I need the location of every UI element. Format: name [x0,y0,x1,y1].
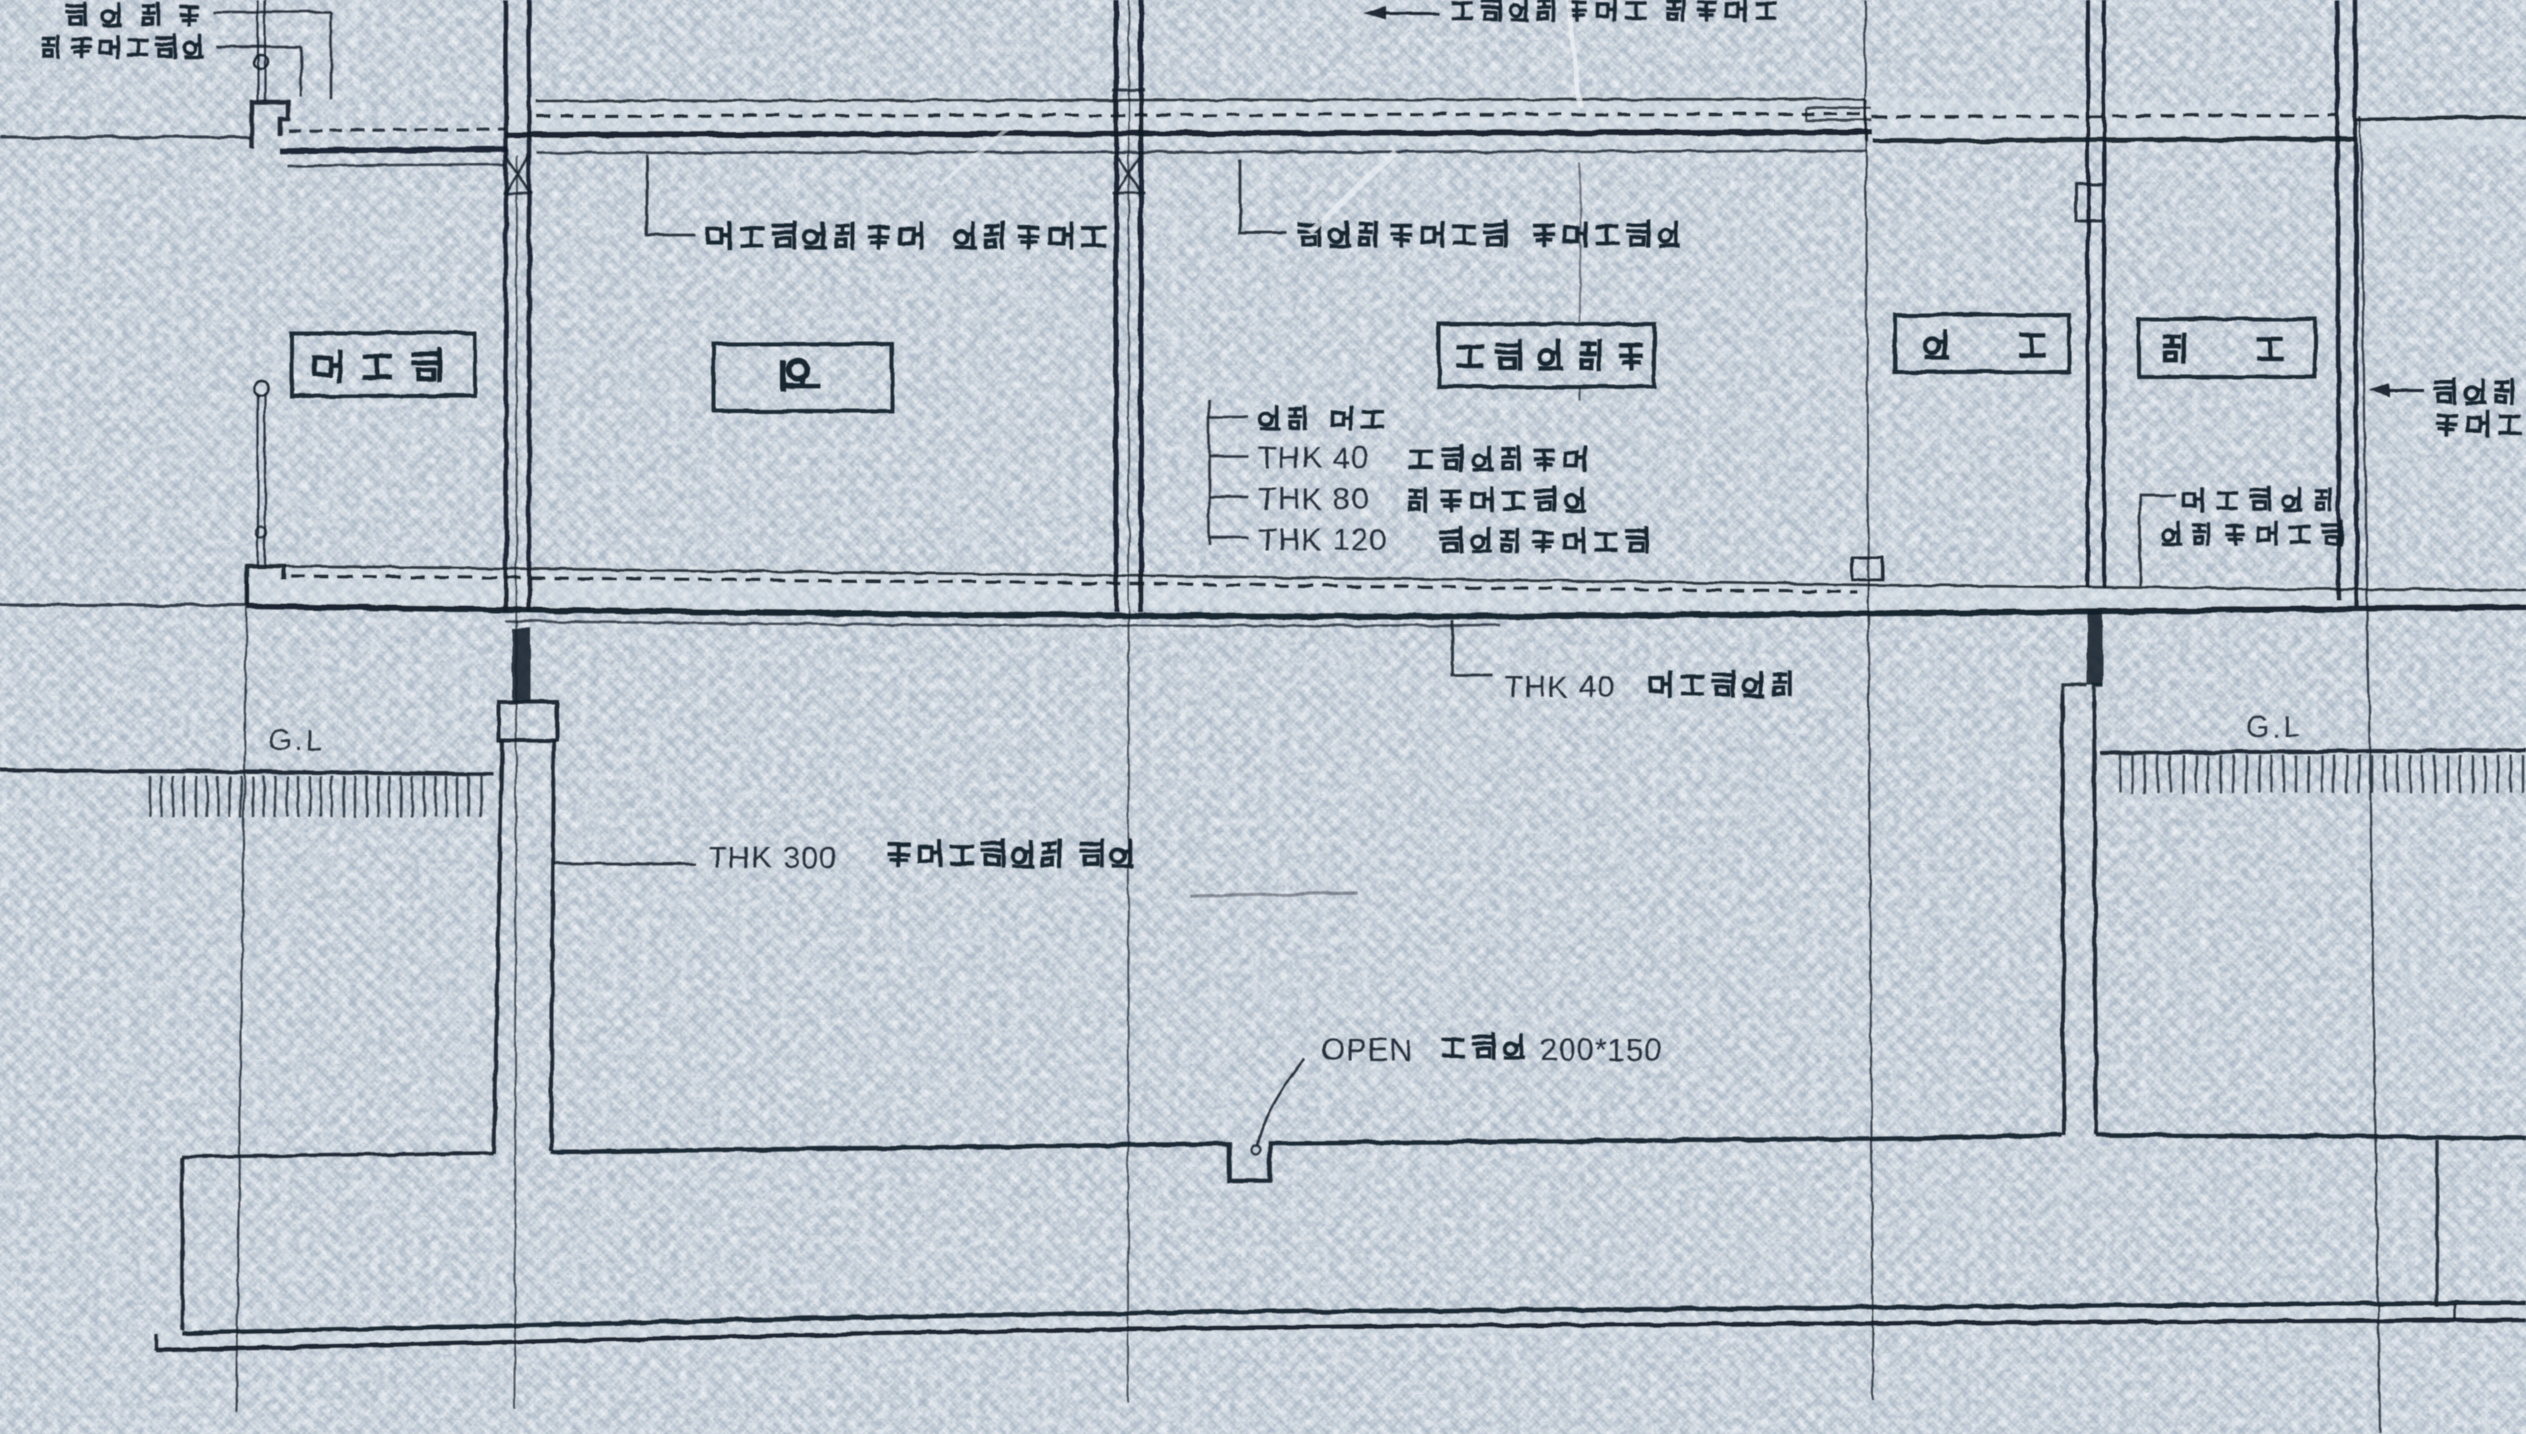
svg-text:G.L: G.L [2246,711,2303,744]
svg-text:200*150: 200*150 [1540,1032,1663,1067]
svg-text:THK 80: THK 80 [1258,481,1369,516]
svg-text:THK 120: THK 120 [1258,522,1387,557]
svg-text:OPEN: OPEN [1321,1032,1413,1067]
svg-text:THK 300: THK 300 [708,840,837,875]
svg-text:THK 40: THK 40 [1504,669,1615,704]
svg-text:G.L: G.L [268,724,325,757]
svg-text:THK 40: THK 40 [1258,440,1369,475]
